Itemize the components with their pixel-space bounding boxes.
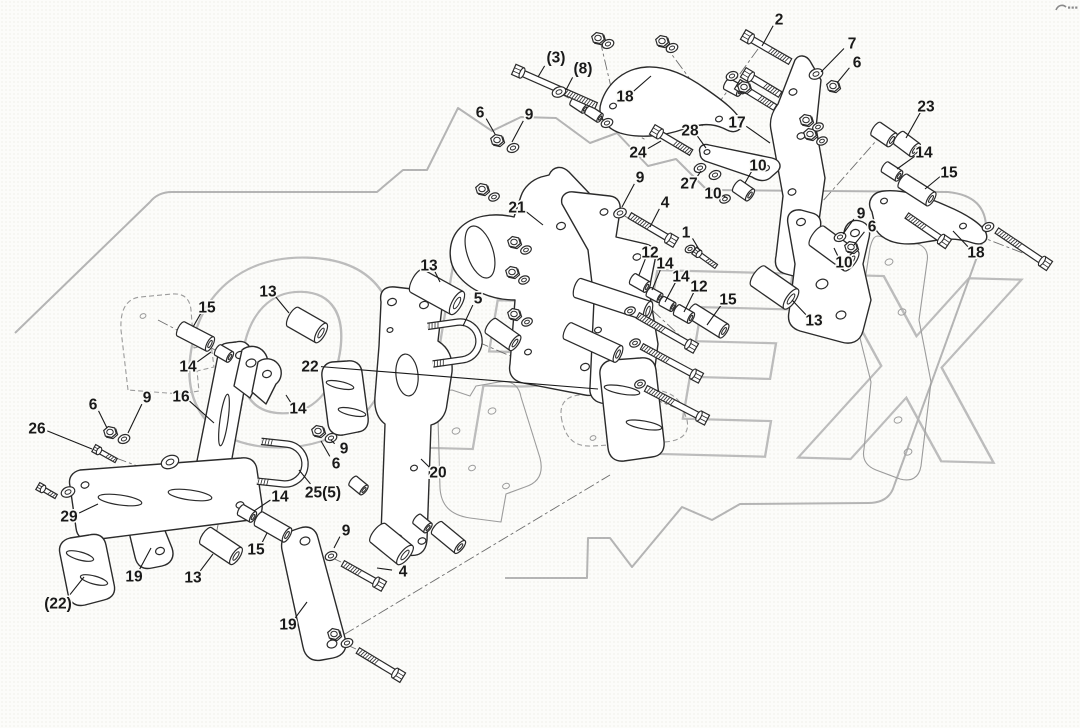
washer	[324, 550, 338, 562]
washer	[117, 433, 131, 445]
hex-bolt	[92, 445, 118, 464]
hex-nut	[827, 81, 841, 93]
part-number-label: 24	[629, 145, 647, 162]
part-number-label: (22)	[44, 596, 72, 613]
part-number-label: 17	[728, 115, 745, 132]
part-number-label: 15	[940, 165, 958, 182]
exploded-parts-diagram: ОРЕХ 2(3)(8)1876231728241415101027699421…	[0, 0, 1080, 728]
part-number-label: 25(5)	[305, 485, 341, 502]
part-number-label: 13	[805, 313, 823, 330]
part-callout: 13	[184, 554, 213, 587]
part-number-label: 15	[198, 300, 216, 317]
part-callout: 9	[334, 523, 351, 549]
cylinder-spacer	[731, 179, 756, 203]
hex-bolt	[36, 483, 58, 500]
cylinder-spacer	[252, 511, 293, 544]
part-callout: 4	[377, 564, 408, 581]
part-number-label: 14	[179, 359, 197, 376]
part-number-label: 9	[636, 170, 645, 187]
part-callout: 26	[28, 421, 92, 450]
part-callout: 9	[128, 390, 152, 434]
part-number-label: 13	[420, 258, 438, 275]
part-number-label: 26	[28, 421, 46, 438]
part-number-label: 5	[474, 291, 483, 308]
part-callout: 6	[89, 397, 107, 429]
part-number-label: (3)	[547, 50, 566, 67]
part-number-label: 23	[917, 99, 935, 116]
part-number-label: 9	[525, 107, 534, 124]
part-callout: 17	[728, 115, 770, 144]
part-number-label: 6	[332, 456, 341, 473]
part-callout: 6	[837, 55, 862, 84]
part-number-label: 14	[289, 401, 307, 418]
washer	[487, 191, 500, 202]
hex-bolt	[740, 30, 792, 67]
part-number-label: 9	[342, 523, 351, 540]
part-callout: (8)	[566, 61, 592, 91]
part-number-label: 19	[279, 617, 297, 634]
part-number-label: 14	[271, 489, 289, 506]
part-callout: 9	[512, 107, 534, 143]
clamp-plate-29	[69, 458, 262, 540]
clamp-plate-22-center	[600, 358, 664, 461]
part-number-label: 9	[340, 441, 349, 458]
part-number-label: 1	[682, 225, 691, 242]
hex-bolt	[355, 646, 406, 683]
part-number-label: 18	[967, 245, 985, 262]
part-number-label: 22	[301, 359, 318, 376]
part-callout: 15	[925, 165, 958, 190]
part-number-label: 10	[749, 158, 766, 175]
cylinder-spacer	[430, 520, 468, 555]
part-number-label: 16	[172, 389, 190, 406]
part-number-label: 10	[835, 255, 852, 272]
washer	[506, 142, 520, 154]
part-number-label: 13	[184, 570, 202, 587]
part-callout: 24	[629, 141, 661, 162]
hex-nut	[491, 135, 505, 147]
part-number-label: 13	[259, 284, 277, 301]
part-number-label: 27	[680, 176, 697, 193]
part-number-label: 7	[848, 36, 857, 53]
part-number-label: 18	[616, 89, 634, 106]
part-number-label: 6	[853, 55, 862, 72]
part-number-label: 9	[143, 390, 152, 407]
part-callout: 28	[681, 123, 706, 149]
part-number-label: 6	[868, 219, 877, 236]
hex-nut	[476, 184, 490, 196]
part-number-label: 4	[399, 564, 408, 581]
part-number-label: 14	[656, 256, 674, 273]
part-number-label: 14	[672, 269, 690, 286]
part-number-label: 4	[661, 195, 670, 212]
part-callout: (3)	[538, 50, 565, 78]
hex-bolt	[340, 559, 386, 592]
part-number-label: 29	[60, 509, 78, 526]
part-number-label: 6	[89, 397, 98, 414]
part-number-label: 19	[125, 569, 143, 586]
part-callout: 23	[906, 99, 935, 139]
part-number-label: 6	[476, 105, 485, 122]
corner-artifact-icon	[1056, 5, 1077, 10]
part-number-label: 9	[857, 206, 866, 223]
cylinder-spacer	[197, 526, 244, 567]
washer	[708, 169, 722, 181]
part-number-label: 28	[681, 123, 699, 140]
hex-nut	[104, 427, 118, 439]
part-number-label: 2	[775, 12, 784, 29]
part-number-label: 15	[719, 292, 737, 309]
part-number-label: (8)	[574, 61, 593, 78]
part-number-label: 10	[704, 186, 721, 203]
part-callout: 15	[247, 533, 267, 559]
part-number-label: 12	[690, 279, 707, 296]
part-number-label: 14	[915, 145, 933, 162]
part-number-label: 21	[508, 200, 526, 217]
part-number-label: 20	[429, 465, 446, 482]
part-callout: 6	[476, 105, 495, 135]
part-callout: 9	[622, 170, 645, 208]
part-callout: 7	[821, 36, 856, 73]
part-callout: 2	[762, 12, 783, 47]
exploded-parts-diagram-page: ОРЕХ 2(3)(8)1876231728241415101027699421…	[0, 0, 1080, 728]
clamp-plate-22-left	[322, 361, 368, 435]
part-number-label: 15	[247, 542, 265, 559]
